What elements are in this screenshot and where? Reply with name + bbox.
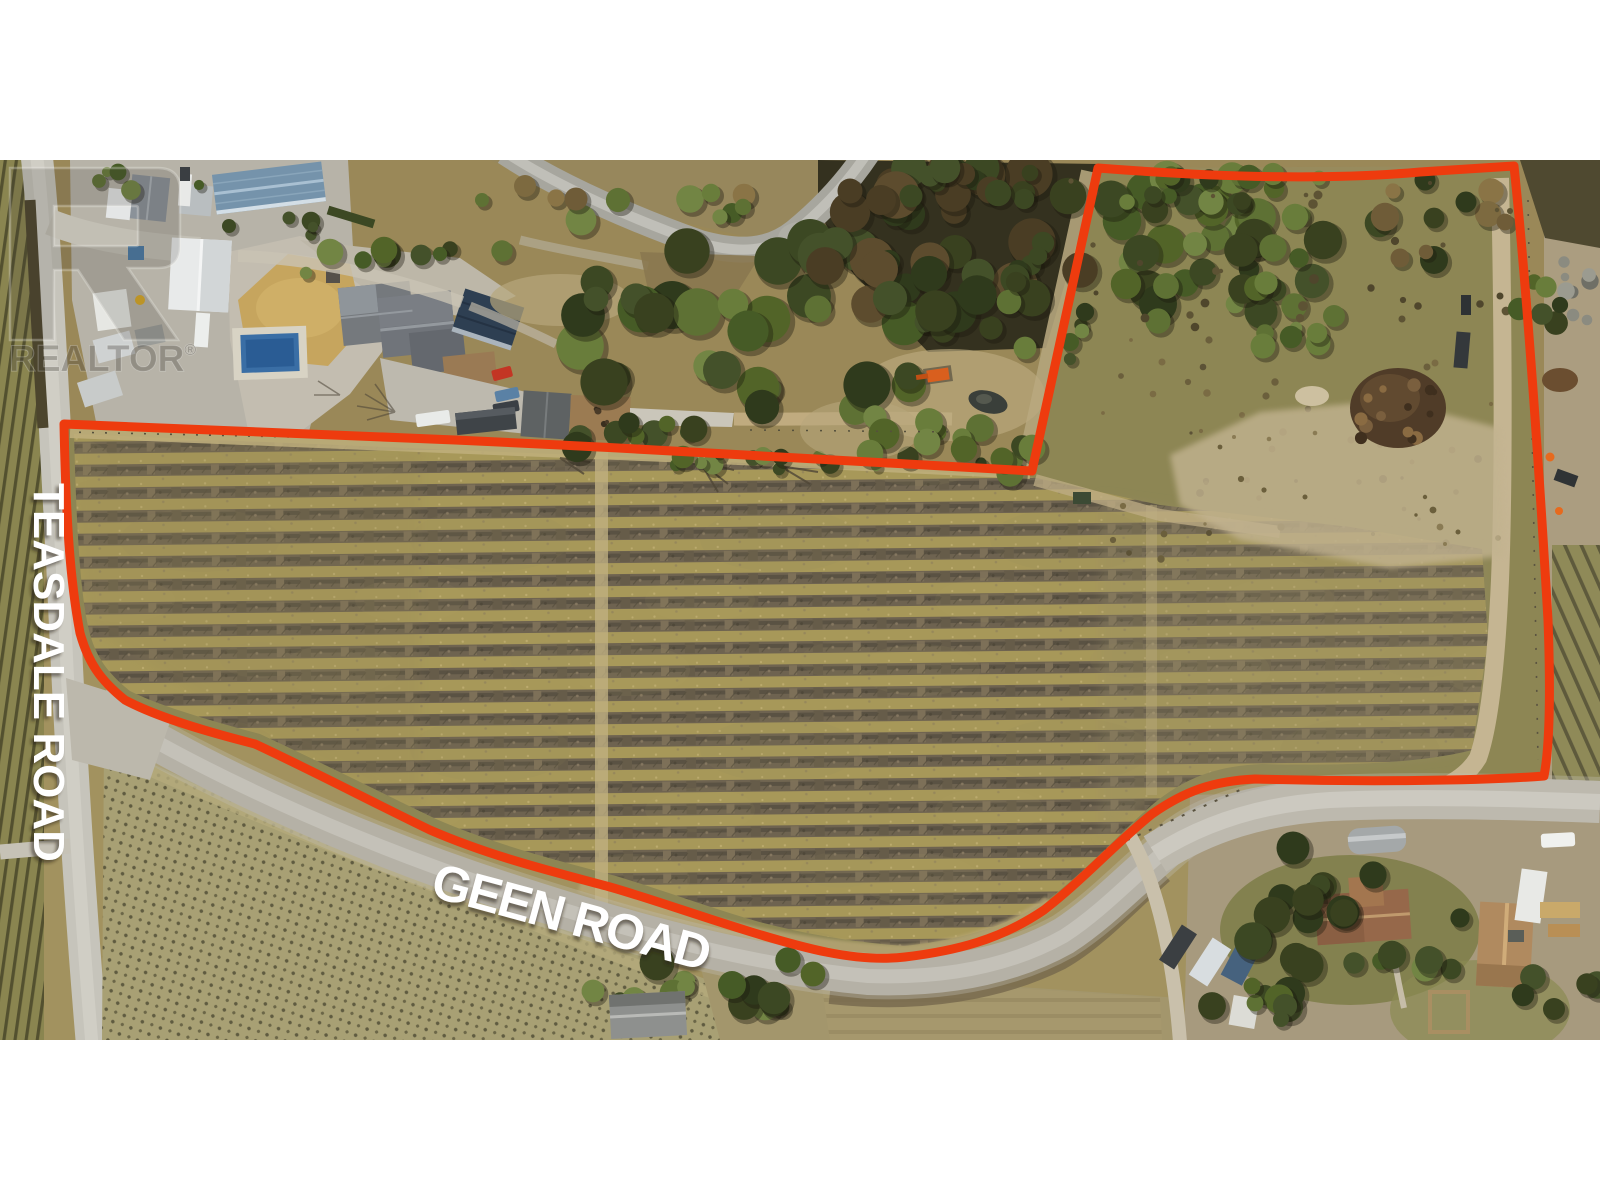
- svg-text:REALTOR®: REALTOR®: [9, 338, 196, 379]
- svg-text:TEASDALE ROAD: TEASDALE ROAD: [24, 483, 73, 862]
